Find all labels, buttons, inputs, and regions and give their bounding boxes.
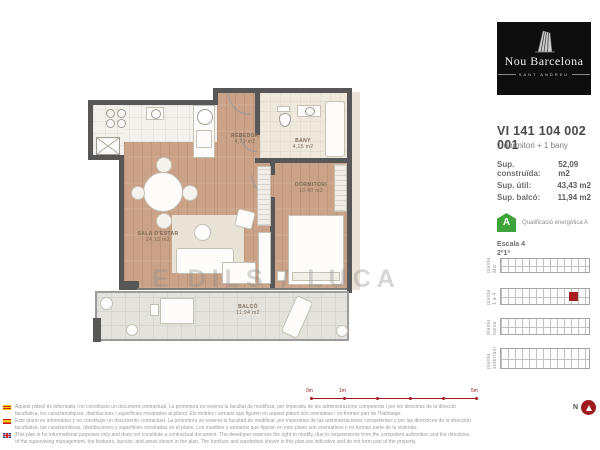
north-arrow-icon bbox=[581, 400, 596, 415]
balcony-chair bbox=[150, 304, 159, 316]
stove-icon bbox=[106, 109, 115, 118]
wall-top-joint bbox=[213, 88, 218, 105]
area-table: Sup. construïda: 52,09 m2 Sup. útil: 43,… bbox=[497, 160, 591, 205]
balcony-table bbox=[160, 298, 194, 324]
area-row-balco: Sup. balcó: 11,94 m2 bbox=[497, 193, 591, 202]
wall-right bbox=[347, 88, 352, 293]
scale-dot bbox=[343, 397, 346, 400]
wall-bottom-left-chunk bbox=[119, 281, 139, 290]
floor-label: 2º1ª bbox=[497, 249, 525, 258]
room-label-dormitori: DORMITORI 10,40 m2 bbox=[283, 182, 339, 195]
wall-left-kitchen bbox=[88, 100, 93, 160]
north-label: N bbox=[573, 404, 578, 411]
wall-bath-left bbox=[255, 93, 260, 135]
energy-label: Qualificació energètica A bbox=[522, 220, 588, 226]
wall-left-living bbox=[119, 160, 124, 285]
keyplan-strip-baixa bbox=[500, 318, 590, 335]
hall-closet bbox=[257, 166, 271, 226]
scale-dot bbox=[475, 397, 478, 400]
disclaimer-ca: Aquest plànol és informatiu i no constit… bbox=[3, 404, 471, 417]
scale-dot bbox=[442, 397, 445, 400]
room-label-bany: BANY 4,15 m2 bbox=[278, 138, 328, 151]
scale-dot bbox=[376, 397, 379, 400]
scale-dot bbox=[409, 397, 412, 400]
keyplan-label-atic: planta àtic bbox=[486, 258, 498, 273]
escala-label: Escala 4 bbox=[497, 240, 525, 249]
planter-icon-3 bbox=[336, 325, 348, 337]
brand-subtitle: SANT ANDREU bbox=[497, 72, 591, 77]
scale-dot bbox=[310, 397, 313, 400]
disclaimer-en: This plan is for informational purposes … bbox=[3, 432, 471, 445]
north-triangle bbox=[586, 405, 592, 411]
stair-floor-info: Escala 4 2º1ª bbox=[497, 240, 525, 258]
dryer-icon bbox=[196, 130, 212, 148]
catalonia-flag-icon bbox=[3, 405, 11, 410]
north-indicator: N bbox=[573, 400, 596, 415]
brand-logo: Nou Barcelona SANT ANDREU bbox=[497, 22, 591, 95]
brand-name: Nou Barcelona bbox=[497, 54, 591, 69]
keyplan-label-baixa: planta baixa bbox=[486, 318, 498, 335]
keyplan-strip-soterrani bbox=[500, 348, 590, 369]
washer-icon bbox=[197, 109, 213, 125]
unit-type: 1 dormitori + 1 bany bbox=[497, 141, 568, 150]
room-label-rebedor: REBEDOR 4,73 m2 bbox=[215, 133, 275, 146]
keyplan-label-soterrani: planta soterrani bbox=[486, 348, 498, 369]
room-label-sala: SALA D'ESTAR 24,15 m2 bbox=[126, 231, 190, 244]
watermark-text: E DILS / LUCA bbox=[152, 265, 401, 294]
scale-bar: 0m 1m 5m bbox=[310, 388, 480, 402]
uk-flag-icon bbox=[3, 433, 11, 438]
toilet-tank-icon bbox=[277, 106, 290, 112]
scale-label-1m: 1m bbox=[339, 388, 346, 394]
fridge-icon bbox=[96, 137, 120, 155]
dining-chairs bbox=[131, 186, 145, 200]
area-row-construida: Sup. construïda: 52,09 m2 bbox=[497, 160, 591, 178]
neighbor-unit-strip bbox=[352, 92, 360, 290]
keyplan-label-planta-1-4: planta 1 a 4 bbox=[486, 288, 498, 305]
unit-location-marker bbox=[569, 292, 578, 301]
area-row-util: Sup. útil: 43,43 m2 bbox=[497, 181, 591, 190]
coffee-table bbox=[194, 224, 211, 241]
balcony-corner-chunk bbox=[93, 318, 101, 342]
room-label-balco: BALCÓ 11,94 m2 bbox=[218, 304, 278, 317]
planter-icon-2 bbox=[126, 324, 138, 336]
building-icon bbox=[529, 28, 559, 54]
scale-label-0m: 0m bbox=[306, 388, 313, 394]
scale-label-5m: 5m bbox=[471, 388, 478, 394]
sink-basin-icon bbox=[151, 109, 161, 119]
dining-table bbox=[143, 172, 183, 212]
energy-rating: A Qualificació energètica A bbox=[497, 213, 588, 232]
keyplan-strip-atic bbox=[500, 258, 590, 273]
bath-sink-basin-icon bbox=[305, 107, 315, 116]
energy-house-icon: A bbox=[497, 213, 516, 232]
spain-flag-icon bbox=[3, 419, 11, 424]
disclaimer-es: Este plano es informativo y no constituy… bbox=[3, 418, 471, 431]
floor-plan: REBEDOR 4,73 m2 BANY 4,15 m2 SALA D'ESTA… bbox=[0, 0, 480, 400]
planter-icon-1 bbox=[100, 297, 113, 310]
scale-line bbox=[310, 398, 477, 399]
shower-icon bbox=[325, 101, 345, 157]
